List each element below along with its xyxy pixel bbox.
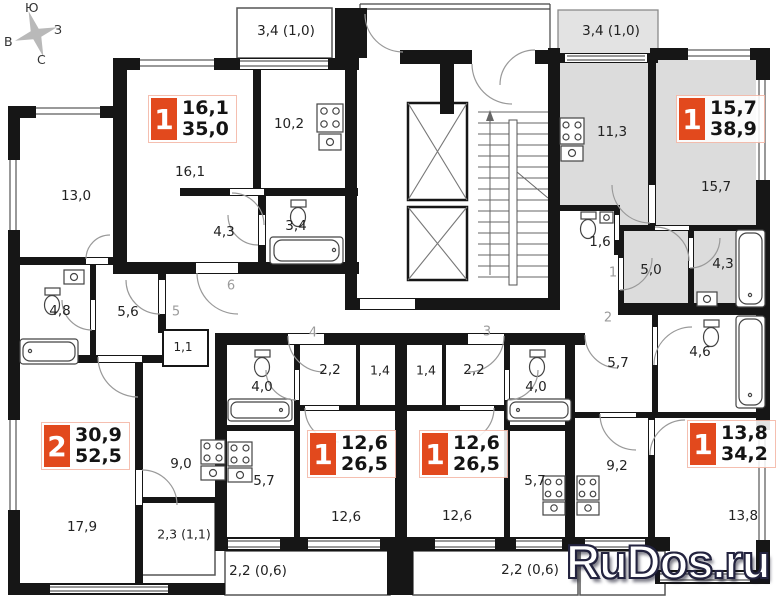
apartment-badge: 2 30,952,5	[41, 422, 130, 470]
room-area-label: 5,6	[117, 304, 138, 320]
apartment-badge: 1 12,626,5	[307, 430, 396, 478]
rooms-count: 1	[310, 433, 336, 475]
balcony-area-label: 2,2 (0,6)	[501, 562, 559, 578]
room-area-label: 11,3	[597, 124, 627, 140]
corridor-number: 1	[609, 266, 617, 281]
corridor-number: 3	[483, 325, 491, 340]
room-area-label: 4,3	[213, 224, 234, 240]
bathtub-icon	[736, 316, 765, 408]
toilet-icon	[530, 350, 546, 377]
total-area: 26,5	[341, 454, 388, 475]
stove-icon	[577, 476, 599, 515]
floorplan: Ю З В С 1 16,135,0 1 15,738,9 2 30,952,5…	[0, 0, 779, 600]
room-area-label: 17,9	[67, 519, 97, 535]
stairs-icon	[478, 110, 548, 285]
rooms-count: 1	[679, 98, 705, 140]
rooms-count: 1	[422, 433, 448, 475]
stove-icon	[201, 440, 225, 480]
balcony-area-label: 3,4 (1,0)	[582, 23, 640, 39]
rooms-count: 1	[690, 423, 716, 465]
corridor-number: 6	[227, 279, 235, 294]
total-area: 35,0	[182, 119, 229, 140]
compass-north-label: С	[37, 52, 46, 67]
rooms-count: 2	[44, 425, 70, 467]
bathtub-icon	[20, 339, 78, 364]
corridor-number: 2	[604, 311, 612, 326]
room-area-label: 4,6	[689, 344, 710, 360]
room-area-label: 9,2	[606, 458, 627, 474]
room-area-label: 4,0	[251, 379, 272, 395]
room-area-label: 2,2	[319, 362, 340, 378]
room-area-label: 13,0	[61, 188, 91, 204]
stove-icon	[560, 118, 584, 161]
balcony-area-label: 2,3 (1,1)	[157, 527, 211, 542]
room-area-label: 5,7	[253, 473, 274, 489]
compass-east-label: В	[4, 34, 13, 49]
room-area-label: 3,4	[285, 218, 306, 234]
stove-icon	[543, 476, 565, 515]
elevator-icon	[408, 103, 467, 280]
total-area: 52,5	[75, 446, 122, 467]
living-area: 30,9	[75, 425, 122, 446]
sink-icon	[600, 212, 613, 223]
room-area-label: 5,7	[607, 355, 628, 371]
apartment-badge: 1 15,738,9	[676, 95, 765, 143]
balcony-area-label: 2,2 (0,6)	[229, 563, 287, 579]
corridor-number: 4	[309, 326, 317, 341]
bathtub-icon	[228, 399, 292, 421]
vestibule-walls	[360, 4, 550, 48]
toilet-icon	[255, 350, 271, 377]
room-area-label: 4,8	[49, 303, 70, 319]
corridor-number: 5	[172, 305, 180, 320]
floorplan-drawing-layer	[0, 0, 779, 600]
total-area: 34,2	[721, 444, 768, 465]
room-area-label: 9,0	[170, 456, 191, 472]
room-area-label: 1,4	[416, 363, 436, 378]
rooms-count: 1	[151, 98, 177, 140]
room-area-label: 10,2	[274, 116, 304, 132]
room-area-label: 1,4	[370, 363, 390, 378]
room-area-label: 1,6	[589, 234, 610, 250]
living-area: 13,8	[721, 423, 768, 444]
room-area-label: 12,6	[442, 508, 472, 524]
toilet-icon	[704, 320, 720, 347]
compass-rose: Ю З В С	[6, 2, 70, 68]
watermark: RuDos.ru	[566, 534, 770, 589]
total-area: 38,9	[710, 119, 757, 140]
living-area: 12,6	[453, 433, 500, 454]
balcony-area-label: 3,4 (1,0)	[257, 23, 315, 39]
apartment-badge: 1 16,135,0	[148, 95, 237, 143]
room-area-label: 5,7	[524, 473, 545, 489]
total-area: 26,5	[453, 454, 500, 475]
bathtub-icon	[507, 399, 571, 421]
sink-icon	[697, 292, 717, 306]
apartment-badge: 1 12,626,5	[419, 430, 508, 478]
room-area-label: 2,2	[463, 362, 484, 378]
room-area-label: 16,1	[175, 164, 205, 180]
living-area: 12,6	[341, 433, 388, 454]
sink-icon	[64, 270, 84, 284]
apartment-badge: 1 13,834,2	[687, 420, 776, 468]
room-area-label: 15,7	[701, 179, 731, 195]
stove-icon	[317, 104, 343, 150]
room-area-label: 12,6	[331, 509, 361, 525]
room-area-label: 1,1	[173, 340, 192, 354]
room-area-label: 5,0	[640, 262, 661, 278]
compass-west-label: З	[54, 22, 62, 37]
compass-south-label: Ю	[25, 0, 39, 15]
living-area: 16,1	[182, 98, 229, 119]
living-area: 15,7	[710, 98, 757, 119]
room-area-label: 4,3	[712, 256, 733, 272]
bathtub-icon	[736, 230, 765, 307]
room-area-label: 4,0	[525, 379, 546, 395]
stove-icon	[228, 442, 252, 482]
bathtub-icon	[270, 237, 343, 264]
room-area-label: 13,8	[728, 508, 758, 524]
